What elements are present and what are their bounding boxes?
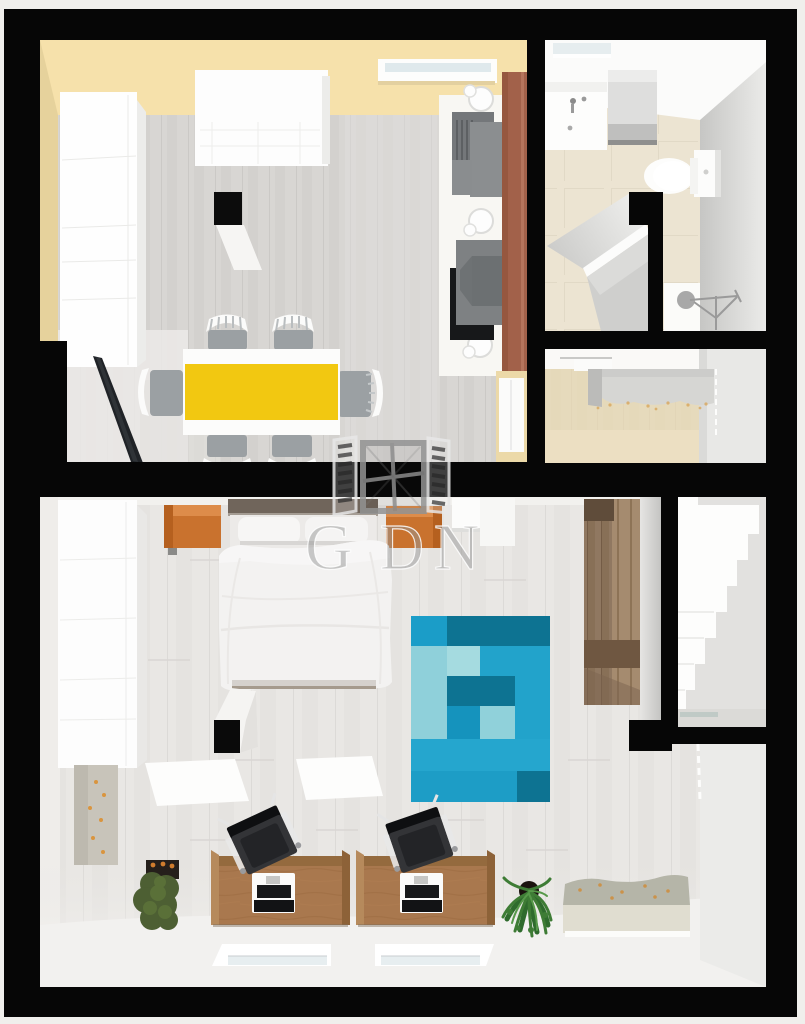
svg-text:D: D [380,510,424,584]
svg-text:G: G [305,511,353,584]
svg-text:N: N [434,511,479,584]
